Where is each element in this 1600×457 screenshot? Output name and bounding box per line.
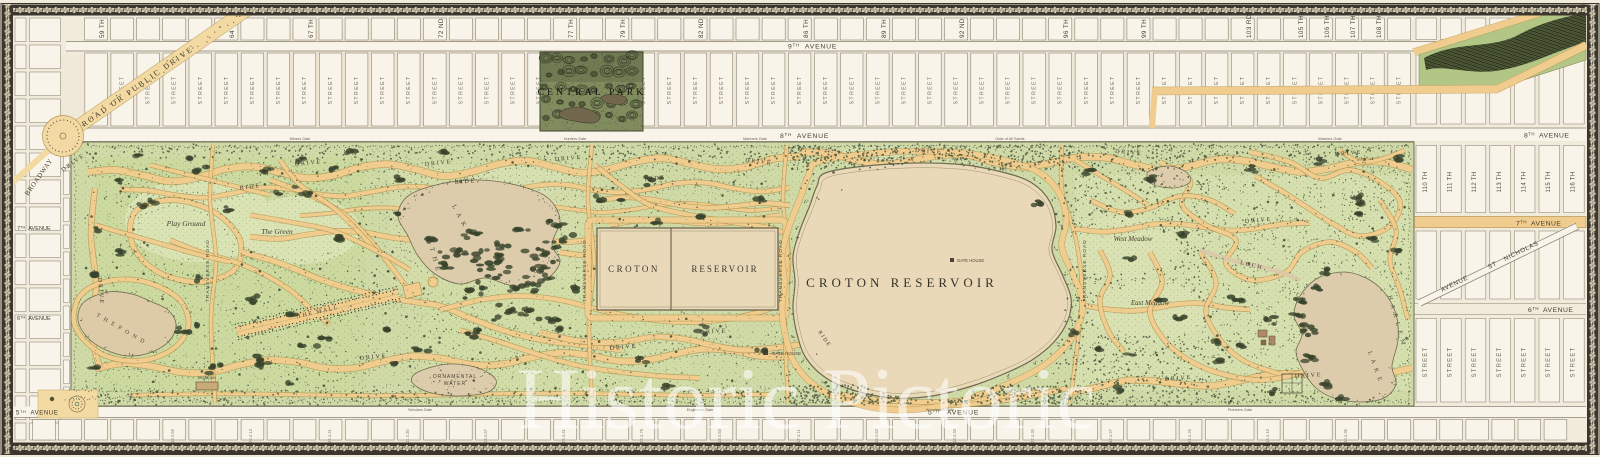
svg-text:STREET: STREET xyxy=(354,75,360,104)
svg-text:STREET: STREET xyxy=(771,75,777,104)
svg-text:13.4.57: 13.4.57 xyxy=(483,428,488,443)
svg-text:Gate of All Saints: Gate of All Saints xyxy=(995,137,1024,141)
svg-text:STREET: STREET xyxy=(458,75,464,104)
svg-text:STREET: STREET xyxy=(1110,75,1116,104)
svg-text:67 TH: 67 TH xyxy=(308,19,315,38)
svg-text:105 TH: 105 TH xyxy=(1298,15,1305,38)
svg-text:STREET: STREET xyxy=(1521,347,1527,378)
svg-text:STREET: STREET xyxy=(172,75,178,104)
svg-text:STREET: STREET xyxy=(1423,347,1429,378)
svg-text:TRANSVERSE ROAD: TRANSVERSE ROAD xyxy=(582,239,588,302)
svg-text:114 TH: 114 TH xyxy=(1521,172,1527,193)
svg-text:96 TH: 96 TH xyxy=(1063,19,1070,38)
svg-text:MUSEUM: MUSEUM xyxy=(198,375,216,380)
svg-text:STREET: STREET xyxy=(745,75,751,104)
svg-text:STREET: STREET xyxy=(875,75,881,104)
svg-text:CROTON RESERVOIR: CROTON RESERVOIR xyxy=(806,275,998,290)
svg-text:STREET: STREET xyxy=(1084,75,1090,104)
svg-text:STREET: STREET xyxy=(1571,347,1577,378)
svg-text:RESERVOIR: RESERVOIR xyxy=(691,264,758,274)
svg-text:10.4.36: 10.4.36 xyxy=(1343,428,1348,443)
svg-text:STREET: STREET xyxy=(980,75,986,104)
svg-text:11.4.30: 11.4.30 xyxy=(405,429,410,443)
svg-text:113 TH: 113 TH xyxy=(1497,172,1503,193)
svg-text:STREET: STREET xyxy=(302,75,308,104)
svg-text:18.4.55: 18.4.55 xyxy=(170,428,175,443)
svg-text:STREET: STREET xyxy=(432,75,438,104)
svg-text:STREET: STREET xyxy=(484,75,490,104)
svg-text:GATE HOUSE: GATE HOUSE xyxy=(957,258,984,263)
svg-text:Mariners Gate: Mariners Gate xyxy=(743,137,767,141)
svg-text:STREET: STREET xyxy=(328,75,334,104)
svg-text:116 TH: 116 TH xyxy=(1571,172,1577,193)
svg-text:STREET: STREET xyxy=(1472,347,1478,378)
svg-text:103 RD: 103 RD xyxy=(1246,14,1253,38)
svg-text:115 TH: 115 TH xyxy=(1546,172,1552,193)
svg-text:STREET: STREET xyxy=(849,75,855,104)
svg-text:STREET: STREET xyxy=(797,75,803,104)
svg-text:ORNAMENTAL: ORNAMENTAL xyxy=(433,374,477,380)
svg-text:STREET: STREET xyxy=(719,75,725,104)
svg-text:WATER: WATER xyxy=(444,381,467,387)
svg-text:Historic Pictoric: Historic Pictoric xyxy=(516,351,1095,448)
svg-text:92 ND: 92 ND xyxy=(959,18,966,38)
svg-text:STREET: STREET xyxy=(511,75,517,104)
svg-text:107 TH: 107 TH xyxy=(1350,15,1357,38)
svg-text:STREET: STREET xyxy=(198,75,204,104)
svg-text:STREET: STREET xyxy=(250,75,256,104)
svg-text:STREET: STREET xyxy=(224,75,230,104)
svg-text:77 TH: 77 TH xyxy=(568,19,575,38)
svg-text:99 TH: 99 TH xyxy=(1141,19,1148,38)
svg-text:Warriors Gate: Warriors Gate xyxy=(1318,137,1342,141)
svg-text:CROTON: CROTON xyxy=(608,264,660,274)
svg-text:111 TH: 111 TH xyxy=(1448,172,1454,192)
svg-text:STREET: STREET xyxy=(1448,347,1454,378)
svg-text:TRANSVERSE ROAD: TRANSVERSE ROAD xyxy=(1082,239,1088,302)
svg-text:STREET: STREET xyxy=(1058,75,1064,104)
svg-text:110 TH: 110 TH xyxy=(1423,172,1429,193)
svg-text:24.4.26: 24.4.26 xyxy=(1187,428,1192,443)
svg-text:STREET: STREET xyxy=(1546,347,1552,378)
svg-text:79 TH: 79 TH xyxy=(620,19,627,38)
svg-text:82 ND: 82 ND xyxy=(698,18,705,38)
svg-text:STREET: STREET xyxy=(406,75,412,104)
svg-text:72 ND: 72 ND xyxy=(438,18,445,38)
svg-text:TRANSVERSE ROAD: TRANSVERSE ROAD xyxy=(205,239,211,302)
svg-text:STREET: STREET xyxy=(1006,75,1012,104)
svg-text:Scholars Gate: Scholars Gate xyxy=(408,408,432,412)
svg-text:24.4.41: 24.4.41 xyxy=(327,428,332,443)
svg-text:14.4.10: 14.4.10 xyxy=(1265,428,1270,443)
svg-text:STREET: STREET xyxy=(1032,75,1038,104)
svg-text:STREET: STREET xyxy=(927,75,933,104)
svg-text:Pioneers Gate: Pioneers Gate xyxy=(1228,408,1252,412)
svg-text:26.4.13: 26.4.13 xyxy=(248,428,253,443)
svg-text:Play Ground: Play Ground xyxy=(166,219,206,228)
svg-text:West Meadow: West Meadow xyxy=(1114,235,1153,243)
svg-text:112 TH: 112 TH xyxy=(1472,172,1478,193)
svg-text:106 TH: 106 TH xyxy=(1324,15,1331,38)
svg-text:86 TH: 86 TH xyxy=(803,19,810,38)
svg-text:TRANSVERSE ROAD: TRANSVERSE ROAD xyxy=(778,239,784,302)
svg-text:12.4.27: 12.4.27 xyxy=(1108,428,1113,443)
svg-text:108 TH: 108 TH xyxy=(1376,15,1383,38)
svg-text:59 TH: 59 TH xyxy=(99,19,106,38)
svg-text:STREET: STREET xyxy=(380,75,386,104)
svg-text:The Green: The Green xyxy=(261,227,293,236)
svg-text:89 TH: 89 TH xyxy=(881,19,888,38)
svg-text:STREET: STREET xyxy=(901,75,907,104)
svg-text:Hunters Gate: Hunters Gate xyxy=(564,137,587,141)
svg-text:STREET: STREET xyxy=(1497,347,1503,378)
svg-text:CENTRAL PARK: CENTRAL PARK xyxy=(538,88,647,98)
svg-text:STREET: STREET xyxy=(667,75,673,104)
svg-text:STREET: STREET xyxy=(823,75,829,104)
svg-text:STREET: STREET xyxy=(693,75,699,104)
svg-text:STREET: STREET xyxy=(1136,75,1142,104)
svg-text:Miners Gate: Miners Gate xyxy=(290,137,311,141)
svg-text:East Meadow: East Meadow xyxy=(1130,299,1170,307)
svg-text:STREET: STREET xyxy=(954,75,960,104)
svg-text:STREET: STREET xyxy=(276,75,282,104)
